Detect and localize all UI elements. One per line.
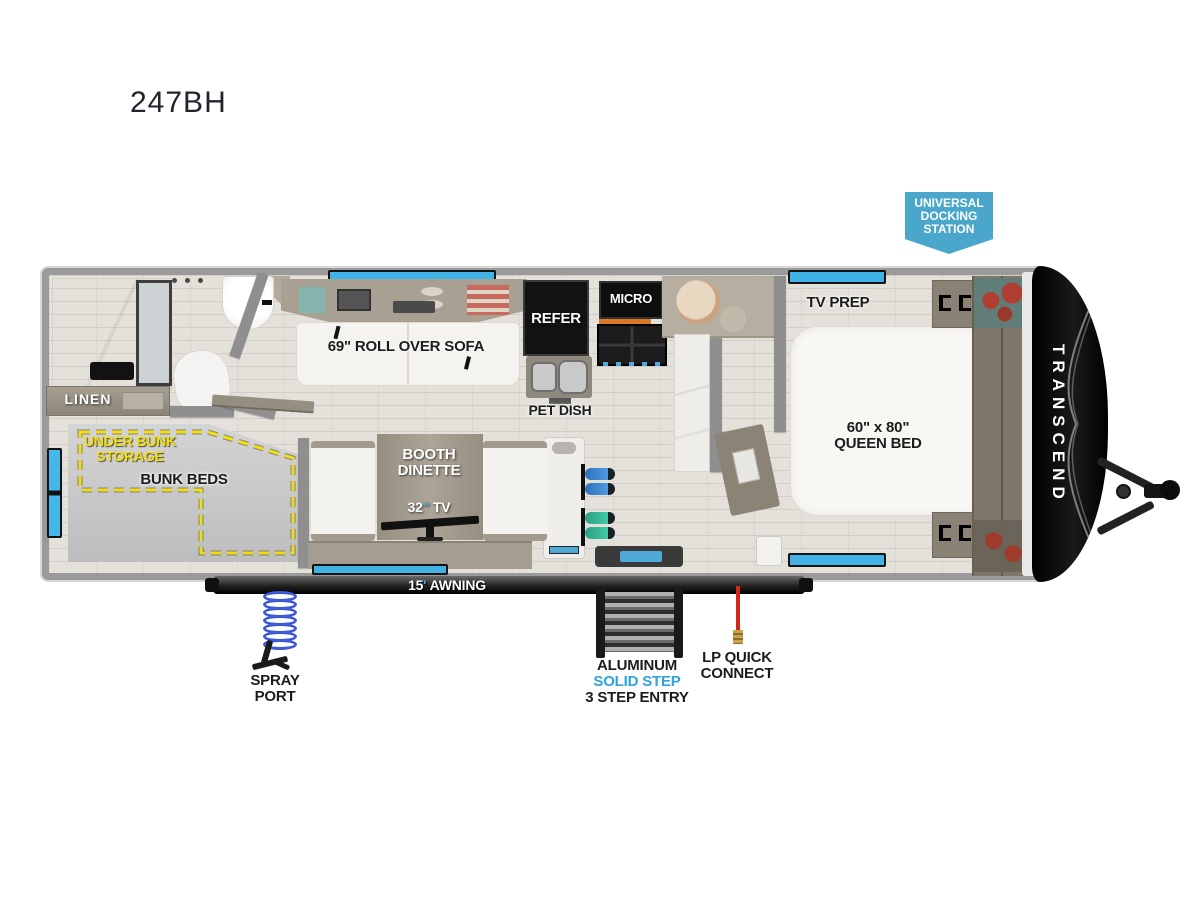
wall-vent-dots	[172, 278, 177, 283]
awning-endcap	[799, 578, 813, 592]
linen-drawer	[122, 392, 164, 410]
awning-endcap	[205, 578, 219, 592]
linen-label: LINEN	[65, 392, 112, 407]
universal-docking-station-badge: UNIVERSAL DOCKING STATION	[905, 192, 993, 254]
under-bunk-line2: STORAGE	[84, 449, 176, 464]
awning-bar	[213, 576, 805, 594]
lp-connector-tip	[733, 630, 743, 644]
counter-circle	[720, 306, 746, 332]
entry-mat	[595, 546, 683, 567]
hitch-coupler	[1160, 480, 1180, 500]
wall	[170, 406, 234, 417]
badge-line: STATION	[924, 223, 975, 236]
awning-label: 15' AWNING	[408, 578, 486, 593]
under-bunk-line1: UNDER BUNK	[84, 434, 176, 449]
dinette-window	[312, 564, 448, 575]
lp-line1: LP QUICK	[701, 650, 774, 666]
steps-label: ALUMINUM SOLID STEP 3 STEP ENTRY	[585, 658, 688, 705]
chair-rack	[581, 464, 585, 500]
tv-prep-label: TV PREP	[807, 295, 870, 311]
refer-label: REFER	[531, 311, 581, 327]
nightstand-handle	[939, 295, 951, 311]
bunk-window	[47, 448, 62, 538]
sink-faucet	[262, 300, 272, 305]
entry-steps-rail	[674, 588, 683, 658]
cap-swoosh-graphic	[1032, 266, 1108, 582]
kitchen-island	[543, 437, 585, 559]
pet-dish-bowl	[531, 362, 557, 392]
hitch-arm-bottom	[1096, 500, 1155, 535]
nightstand-handle	[959, 295, 971, 311]
console-screen	[337, 289, 371, 311]
bed-size-line: 60" x 80"	[834, 420, 921, 436]
pantry-door	[732, 448, 760, 484]
counter-peninsula	[674, 334, 710, 472]
nightstand-handle	[939, 525, 951, 541]
booth-line1: BOOTH	[398, 447, 461, 463]
island-blue-panel	[549, 546, 579, 554]
brand-text: TRANSCEND	[1048, 290, 1068, 558]
entry-cabinet	[756, 536, 782, 566]
dinette-bench-right	[483, 441, 547, 541]
dinette-bench-left	[311, 441, 375, 541]
steps-line1: ALUMINUM	[585, 658, 688, 674]
bedroom-window-top	[788, 270, 886, 284]
nightstand-handle	[959, 525, 971, 541]
stored-chair-teal	[585, 527, 615, 539]
kitchen-sink	[676, 280, 720, 324]
lp-quick-connect-label: LP QUICK CONNECT	[701, 650, 774, 682]
console-game-chip	[299, 287, 325, 313]
sofa-label: 69" ROLL OVER SOFA	[328, 339, 485, 355]
island-sink	[552, 442, 576, 454]
queen-bed-label: 60" x 80" QUEEN BED	[834, 420, 921, 452]
wall	[774, 276, 786, 432]
console-button	[421, 287, 443, 296]
stored-chair-blue	[585, 483, 615, 495]
booth-line2: DINETTE	[398, 463, 461, 479]
shower-door	[136, 280, 172, 386]
stored-chair-blue	[585, 468, 615, 480]
micro-label: MICRO	[610, 292, 652, 306]
entry-mat-center	[620, 551, 662, 562]
steps-line3: 3 STEP ENTRY	[585, 690, 688, 706]
stove-knobs	[603, 362, 608, 366]
spray-line1: SPRAY	[250, 673, 299, 689]
entry-steps-rail	[596, 588, 605, 658]
awning-word: AWNING	[426, 577, 486, 593]
lp-line2: CONNECT	[701, 666, 774, 682]
bedroom-window-bottom	[788, 553, 886, 567]
pet-dish-label: PET DISH	[529, 403, 592, 418]
spray-port-label: SPRAY PORT	[250, 673, 299, 705]
steps-line2: SOLID STEP	[585, 674, 688, 690]
console-speaker	[393, 301, 435, 313]
floorplan-page: 247BH UNIVERSAL DOCKING STATION LINEN UN…	[0, 0, 1200, 900]
awning-length: 15	[408, 577, 423, 593]
stove	[597, 324, 667, 366]
shower-valve	[90, 362, 134, 380]
hitch-jack	[1116, 484, 1131, 499]
spray-line2: PORT	[250, 689, 299, 705]
chair-rack	[581, 508, 585, 546]
tv-size: 32	[408, 499, 423, 515]
tv-label: 32" TV	[408, 500, 451, 515]
under-bunk-storage-label: UNDER BUNK STORAGE	[84, 434, 176, 463]
entry-steps-treads	[605, 592, 674, 652]
lp-line	[736, 586, 740, 632]
booth-dinette-label: BOOTH DINETTE	[398, 447, 461, 479]
front-cap	[1032, 266, 1108, 582]
tv-word: TV	[429, 499, 450, 515]
bed-name-line: QUEEN BED	[834, 436, 921, 452]
console-game-board	[467, 285, 509, 315]
stored-chair-teal	[585, 512, 615, 524]
model-title: 247BH	[130, 86, 227, 120]
bunk-beds-label: BUNK BEDS	[140, 472, 227, 488]
